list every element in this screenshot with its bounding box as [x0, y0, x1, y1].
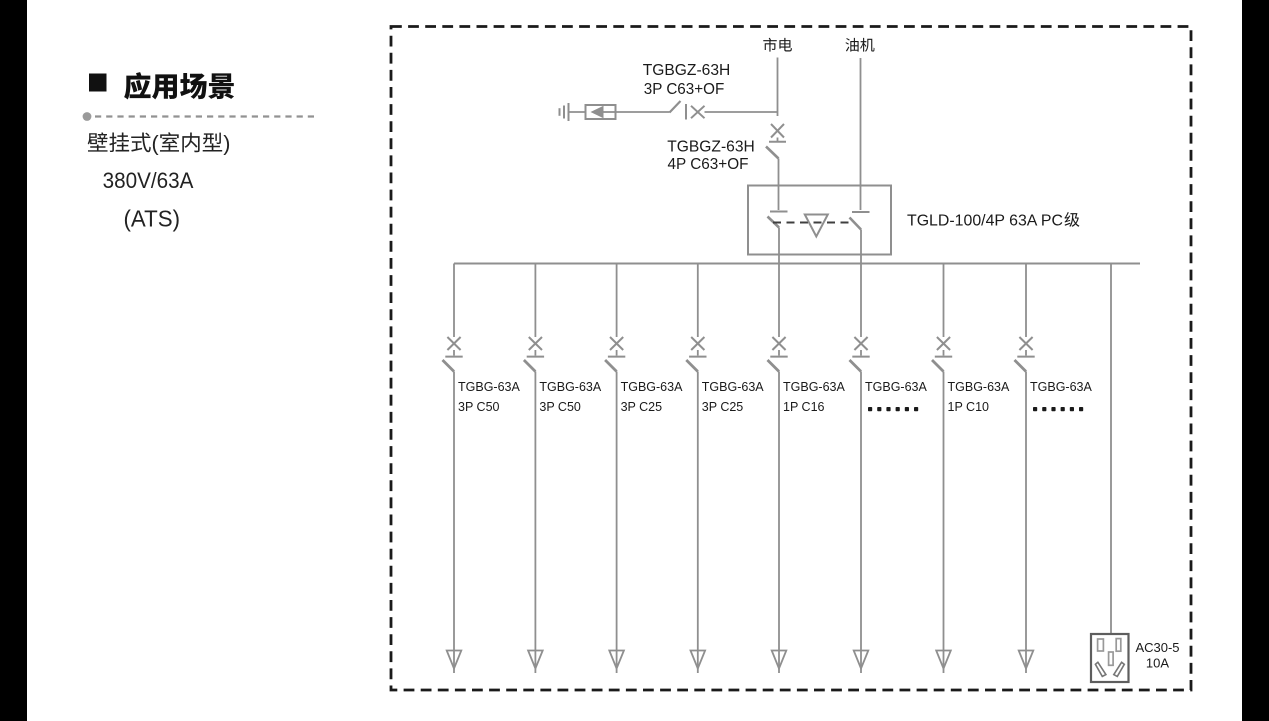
- svg-text:TGBG-63A: TGBG-63A: [539, 380, 601, 394]
- svg-text:AC30-5: AC30-5: [1135, 640, 1179, 655]
- svg-text:TGBG-63A: TGBG-63A: [948, 380, 1010, 394]
- svg-text:3P C25: 3P C25: [702, 400, 744, 414]
- svg-text:4P C63+OF: 4P C63+OF: [668, 156, 749, 173]
- svg-text:TGBGZ-63H: TGBGZ-63H: [643, 62, 731, 79]
- svg-text:TGBG-63A: TGBG-63A: [1030, 380, 1092, 394]
- svg-text:(ATS): (ATS): [124, 206, 181, 232]
- svg-text:TGBG-63A: TGBG-63A: [621, 380, 683, 394]
- svg-text:3P C25: 3P C25: [621, 400, 663, 414]
- svg-text:1P C10: 1P C10: [948, 400, 990, 414]
- svg-text:3P C63+OF: 3P C63+OF: [644, 81, 725, 98]
- svg-text:TGLD-100/4P 63A PC: TGLD-100/4P 63A PC: [907, 213, 1063, 230]
- svg-text:TGBG-63A: TGBG-63A: [783, 380, 845, 394]
- svg-text:(: (: [152, 132, 160, 156]
- svg-text:): ): [223, 132, 230, 156]
- svg-text:TGBG-63A: TGBG-63A: [458, 380, 520, 394]
- svg-text:3P C50: 3P C50: [539, 400, 581, 414]
- svg-text:3P C50: 3P C50: [458, 400, 500, 414]
- svg-text:TGBGZ-63H: TGBGZ-63H: [667, 138, 755, 155]
- svg-text:10A: 10A: [1146, 656, 1169, 671]
- svg-text:380V/63A: 380V/63A: [103, 168, 194, 193]
- svg-text:TGBG-63A: TGBG-63A: [865, 380, 927, 394]
- svg-text:TGBG-63A: TGBG-63A: [702, 380, 764, 394]
- svg-text:1P C16: 1P C16: [783, 400, 825, 414]
